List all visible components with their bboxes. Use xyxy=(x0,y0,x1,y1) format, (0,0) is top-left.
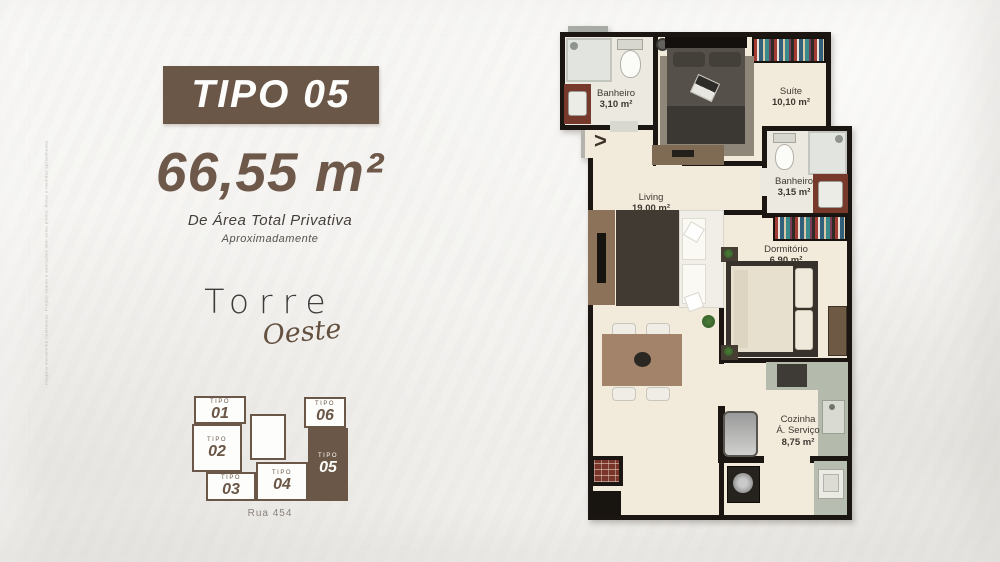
keyplan-unit-01: TIPO 01 xyxy=(194,396,246,424)
room-label-living: Living 19,00 m² xyxy=(611,192,691,215)
room-name: Banheiro xyxy=(578,88,654,99)
toilet-1 xyxy=(620,50,641,78)
dorm-bed-fold xyxy=(734,270,748,348)
opening-banheiro-1 xyxy=(610,121,638,132)
keyplan-unit-05: TIPO 05 xyxy=(308,428,348,501)
suite-pillow xyxy=(673,52,705,67)
room-name: Banheiro xyxy=(764,176,824,187)
toilet-2 xyxy=(775,144,794,170)
unit-num-label: 05 xyxy=(319,460,337,476)
room-label-suite: Suíte 10,10 m² xyxy=(753,86,829,109)
unit-tipo-label: TIPO xyxy=(207,437,227,443)
dorm-dresser xyxy=(828,306,847,356)
toilet-tank-2 xyxy=(773,133,796,143)
entry-threshold xyxy=(581,130,585,158)
room-area: 6,90 m² xyxy=(746,255,826,266)
area-value: 66,55 m² xyxy=(100,140,440,204)
entry-door-marker: > xyxy=(594,128,607,154)
room-label-dormitorio: Dormitório 6,90 m² xyxy=(746,244,826,267)
unit-num-label: 02 xyxy=(208,444,226,460)
room-label-banheiro-2: Banheiro 3,15 m² xyxy=(764,176,824,199)
unit-tipo-label: TIPO xyxy=(210,399,230,405)
fridge-icon xyxy=(723,411,758,457)
keyplan: TIPO 01 TIPO 06 TIPO 02 TIPO 03 TIPO 04 … xyxy=(186,390,354,508)
toilet-tank-1 xyxy=(617,39,643,50)
room-name-2: Á. Serviço xyxy=(760,425,836,436)
floorplan: > xyxy=(556,18,898,523)
room-name: Dormitório xyxy=(746,244,826,255)
opening-cozinha xyxy=(716,364,728,410)
unit-num-label: 04 xyxy=(273,477,291,493)
suite-bed-blanket xyxy=(667,106,745,144)
dorm-pillow xyxy=(795,268,813,308)
shower-head-icon xyxy=(570,42,578,50)
room-name: Living xyxy=(611,192,691,203)
area-sublabel: Aproximadamente xyxy=(100,233,440,245)
suite-bed-headboard xyxy=(665,37,747,48)
plant-icon xyxy=(724,347,733,356)
dining-chair xyxy=(646,387,670,401)
table-centerpiece xyxy=(634,352,651,367)
tank-basin xyxy=(823,474,839,492)
keyplan-unit-02: TIPO 02 xyxy=(192,424,242,472)
console-decor xyxy=(672,150,694,157)
tv-icon xyxy=(597,233,606,283)
room-name: Suíte xyxy=(753,86,829,97)
room-name: Cozinha xyxy=(760,414,836,425)
plant-icon xyxy=(724,249,733,258)
room-area: 3,10 m² xyxy=(578,99,654,110)
room-area: 8,75 m² xyxy=(760,437,836,448)
grill-icon xyxy=(590,456,623,486)
keyplan-core xyxy=(250,414,286,460)
room-area: 10,10 m² xyxy=(753,97,829,108)
unit-num-label: 03 xyxy=(222,482,240,498)
stove-icon xyxy=(777,364,807,387)
room-area: 3,15 m² xyxy=(764,187,824,198)
poster-canvas: Imagens meramente ilustrativas. Projeto … xyxy=(0,0,1000,562)
keyplan-unit-04: TIPO 04 xyxy=(256,462,308,501)
type-badge-label: TIPO 05 xyxy=(191,73,350,117)
suite-wardrobe xyxy=(752,37,826,63)
opening-corridor xyxy=(721,168,731,208)
room-label-cozinha: Cozinha Á. Serviço 8,75 m² xyxy=(760,414,836,448)
dorm-pillow xyxy=(795,310,813,350)
dining-chair xyxy=(612,387,636,401)
keyplan-unit-06: TIPO 06 xyxy=(304,397,346,428)
faucet-icon xyxy=(829,404,835,410)
unit-num-label: 06 xyxy=(316,408,334,424)
living-rug xyxy=(616,210,688,306)
plant-icon xyxy=(702,315,715,328)
shaft-box xyxy=(590,491,621,516)
keyplan-unit-03: TIPO 03 xyxy=(206,472,256,501)
unit-num-label: 01 xyxy=(211,406,229,422)
vertical-disclaimer: Imagens meramente ilustrativas. Projeto … xyxy=(44,127,49,397)
shower-head-icon xyxy=(835,135,843,143)
suite-pillow xyxy=(709,52,741,67)
dorm-wardrobe xyxy=(773,215,847,241)
washer-drum-icon xyxy=(733,473,753,493)
room-label-banheiro-1: Banheiro 3,10 m² xyxy=(578,88,654,111)
area-label: De Área Total Privativa xyxy=(100,212,440,229)
wall-stub xyxy=(718,456,764,463)
type-badge: TIPO 05 xyxy=(163,66,379,124)
street-label: Rua 454 xyxy=(186,508,354,519)
room-area: 19,00 m² xyxy=(611,203,691,214)
